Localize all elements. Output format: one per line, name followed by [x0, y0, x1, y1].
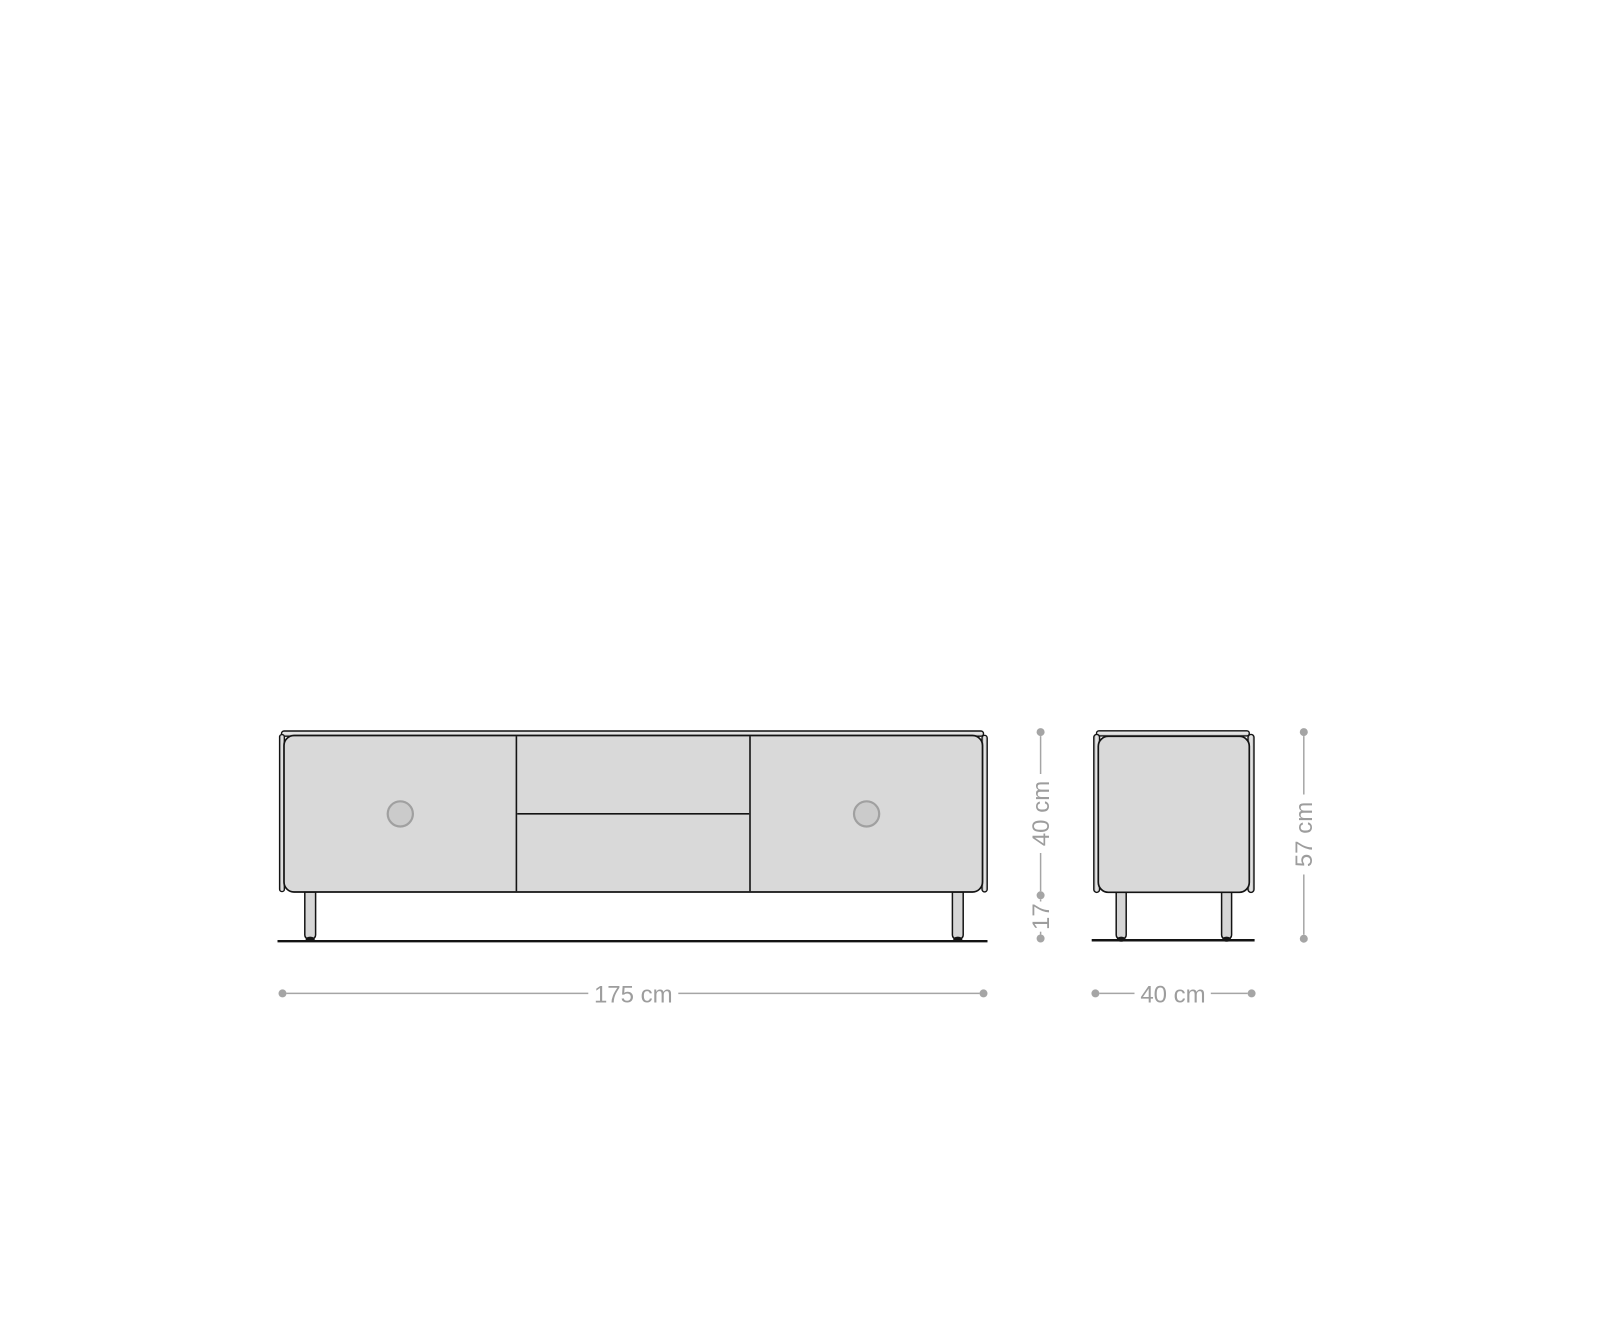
svg-text:40 cm: 40 cm: [1140, 982, 1205, 1009]
svg-text:17: 17: [1028, 903, 1055, 930]
svg-text:175 cm: 175 cm: [594, 982, 673, 1009]
svg-text:57 cm: 57 cm: [1291, 802, 1318, 867]
svg-text:40 cm: 40 cm: [1028, 781, 1055, 846]
